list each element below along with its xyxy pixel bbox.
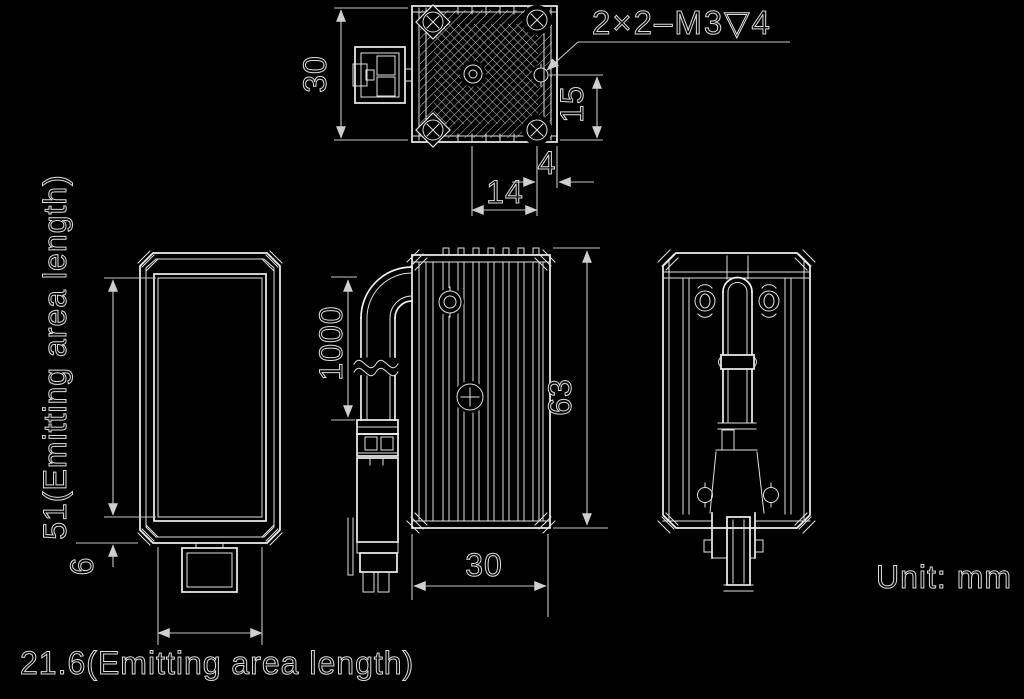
top-view: 30 15 14 4 2×2–M3▽4	[297, 4, 790, 216]
mount-hole-icon	[695, 285, 715, 318]
unit-label: Unit: mm	[876, 559, 1012, 595]
dim-emitting-height: 51(Emitting area length)	[37, 174, 156, 540]
cable-connector	[348, 420, 398, 592]
thread-callout-label: 2×2–M3▽4	[592, 4, 772, 41]
back-view-body	[663, 253, 810, 528]
break-symbol	[354, 360, 398, 368]
dim-label: 30	[297, 55, 333, 93]
top-view-connector	[353, 47, 412, 103]
dim-label: 63	[542, 378, 578, 416]
back-view	[658, 250, 815, 591]
dim-label: 14	[486, 174, 524, 210]
front-view-body	[140, 253, 280, 543]
cable	[354, 267, 412, 420]
emitting-window	[154, 274, 266, 521]
dim-label: 15	[554, 85, 590, 123]
back-body-lines	[669, 260, 804, 520]
corner-screw-icon	[522, 115, 552, 145]
dim-label: 4	[538, 145, 557, 181]
corner-screw-icon	[522, 5, 552, 35]
front-view: 51(Emitting area length) 6 21.6(Emitting…	[20, 174, 414, 681]
dim-cable-length: 1000	[313, 277, 357, 420]
heatsink-fins	[419, 248, 543, 521]
back-bottom-connector	[704, 513, 763, 591]
dim-below-window: 6	[64, 543, 138, 575]
front-bottom-connector	[182, 544, 237, 592]
dim-label: 30	[465, 547, 503, 583]
dim-hole-edge-offset: 4	[512, 145, 594, 182]
cable-channel	[710, 256, 764, 513]
dim-label: 21.6(Emitting area length)	[20, 645, 414, 681]
mount-hole-icon	[759, 285, 779, 318]
dim-label: 51(Emitting area length)	[37, 174, 73, 540]
drawing-svg: 30 15 14 4 2×2–M3▽4	[0, 0, 1024, 699]
dim-body-depth: 30	[412, 534, 548, 617]
dim-label: 6	[64, 557, 100, 576]
side-view: 1000 63 30	[313, 248, 608, 617]
cable-clamp	[721, 355, 754, 369]
mount-hole-icon	[698, 483, 713, 507]
thread-callout: 2×2–M3▽4	[547, 4, 790, 70]
mount-hole-icon	[764, 483, 779, 507]
dim-body-height: 63	[542, 248, 608, 528]
dim-label: 1000	[313, 305, 349, 380]
dimension-drawing: 30 15 14 4 2×2–M3▽4	[0, 0, 1024, 699]
